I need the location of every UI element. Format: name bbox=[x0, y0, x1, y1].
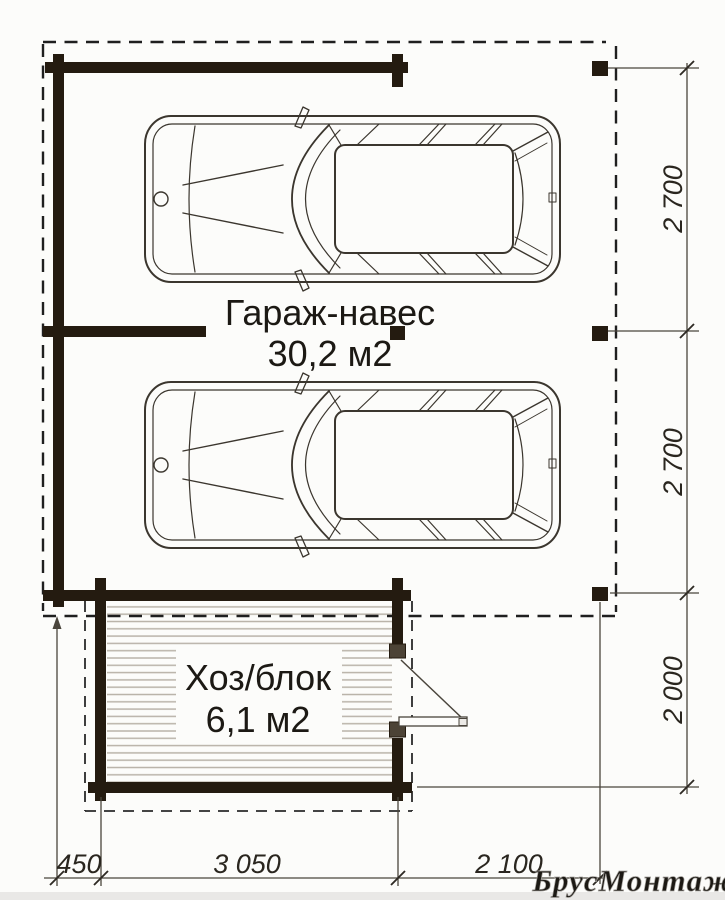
utility-wall-left bbox=[95, 578, 106, 801]
utility-label-area: 6,1 м2 bbox=[206, 699, 311, 740]
post-right-middle bbox=[592, 326, 608, 341]
door-leaf bbox=[399, 717, 467, 726]
dim-right-bottom: 2 000 bbox=[658, 656, 688, 725]
watermark-logo: БрусМонтаж bbox=[531, 863, 725, 898]
utility-wall-right-upper bbox=[392, 578, 403, 648]
door-jamb-top bbox=[390, 644, 406, 658]
floor-plan-drawing: Гараж-навес 30,2 м2 Хоз/блок 6,1 м2 2 70… bbox=[0, 0, 725, 900]
garage-label-area: 30,2 м2 bbox=[268, 333, 393, 374]
dim-bottom-middle: 3 050 bbox=[213, 849, 281, 879]
wall-middle bbox=[43, 326, 206, 337]
wall-top-end-cross bbox=[392, 54, 403, 87]
dim-right-top: 2 700 bbox=[658, 165, 688, 234]
door-knob bbox=[459, 719, 467, 726]
garage-label-name: Гараж-навес bbox=[225, 292, 435, 333]
utility-label-name: Хоз/блок bbox=[185, 657, 331, 698]
dim-bottom-left: 450 bbox=[56, 849, 101, 879]
floor-plan-page: Гараж-навес 30,2 м2 Хоз/блок 6,1 м2 2 70… bbox=[0, 0, 725, 900]
post-right-top bbox=[592, 61, 608, 76]
utility-wall-bottom bbox=[88, 782, 412, 793]
wall-top bbox=[45, 62, 408, 73]
post-right-bottom bbox=[592, 587, 608, 601]
utility-wall-right-lower bbox=[392, 738, 403, 801]
dim-right-middle: 2 700 bbox=[658, 428, 688, 497]
